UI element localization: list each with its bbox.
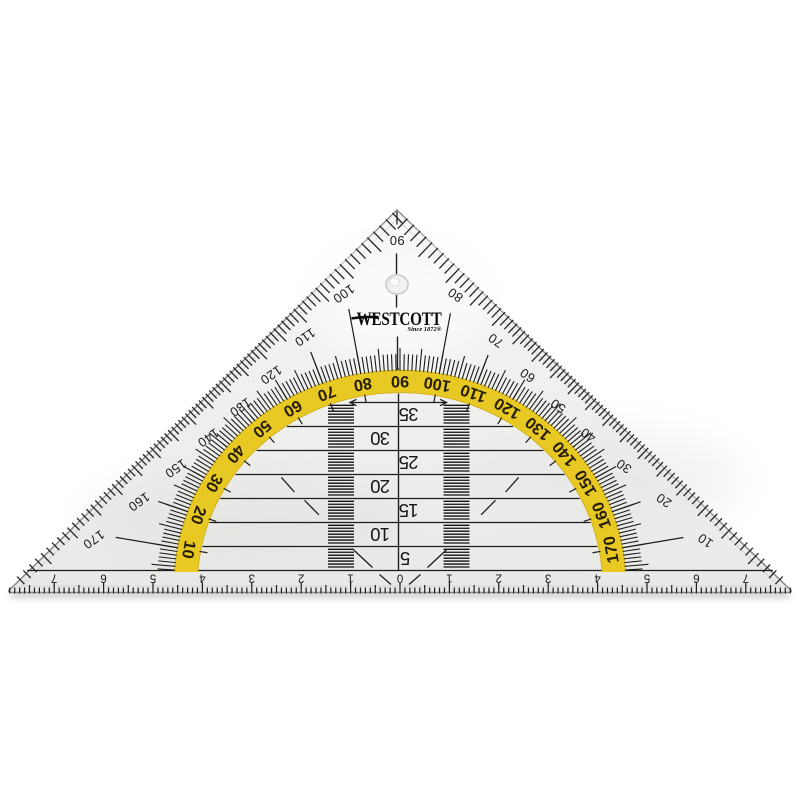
svg-text:25: 25 <box>399 452 418 473</box>
svg-text:4: 4 <box>199 572 206 584</box>
svg-text:Since 1872®: Since 1872® <box>408 326 442 333</box>
svg-text:80: 80 <box>352 374 373 395</box>
svg-text:10: 10 <box>371 524 390 545</box>
svg-text:2: 2 <box>496 572 502 584</box>
svg-text:20: 20 <box>371 476 390 497</box>
svg-text:30: 30 <box>371 428 390 449</box>
svg-text:10: 10 <box>178 539 199 560</box>
svg-text:7: 7 <box>51 572 57 584</box>
svg-text:1: 1 <box>446 572 452 584</box>
svg-text:5: 5 <box>400 548 410 569</box>
svg-text:4: 4 <box>594 572 601 584</box>
svg-text:15: 15 <box>399 500 418 521</box>
svg-text:1: 1 <box>347 572 353 584</box>
svg-text:3: 3 <box>249 572 255 584</box>
svg-text:90: 90 <box>389 233 404 248</box>
svg-text:5: 5 <box>150 572 156 584</box>
svg-text:2: 2 <box>298 572 304 584</box>
svg-text:7: 7 <box>743 572 749 584</box>
svg-text:0: 0 <box>397 572 403 584</box>
svg-text:90: 90 <box>391 372 409 390</box>
svg-text:35: 35 <box>399 404 418 425</box>
svg-text:6: 6 <box>693 572 699 584</box>
svg-text:6: 6 <box>100 572 106 584</box>
svg-text:3: 3 <box>545 572 551 584</box>
svg-text:5: 5 <box>644 572 650 584</box>
